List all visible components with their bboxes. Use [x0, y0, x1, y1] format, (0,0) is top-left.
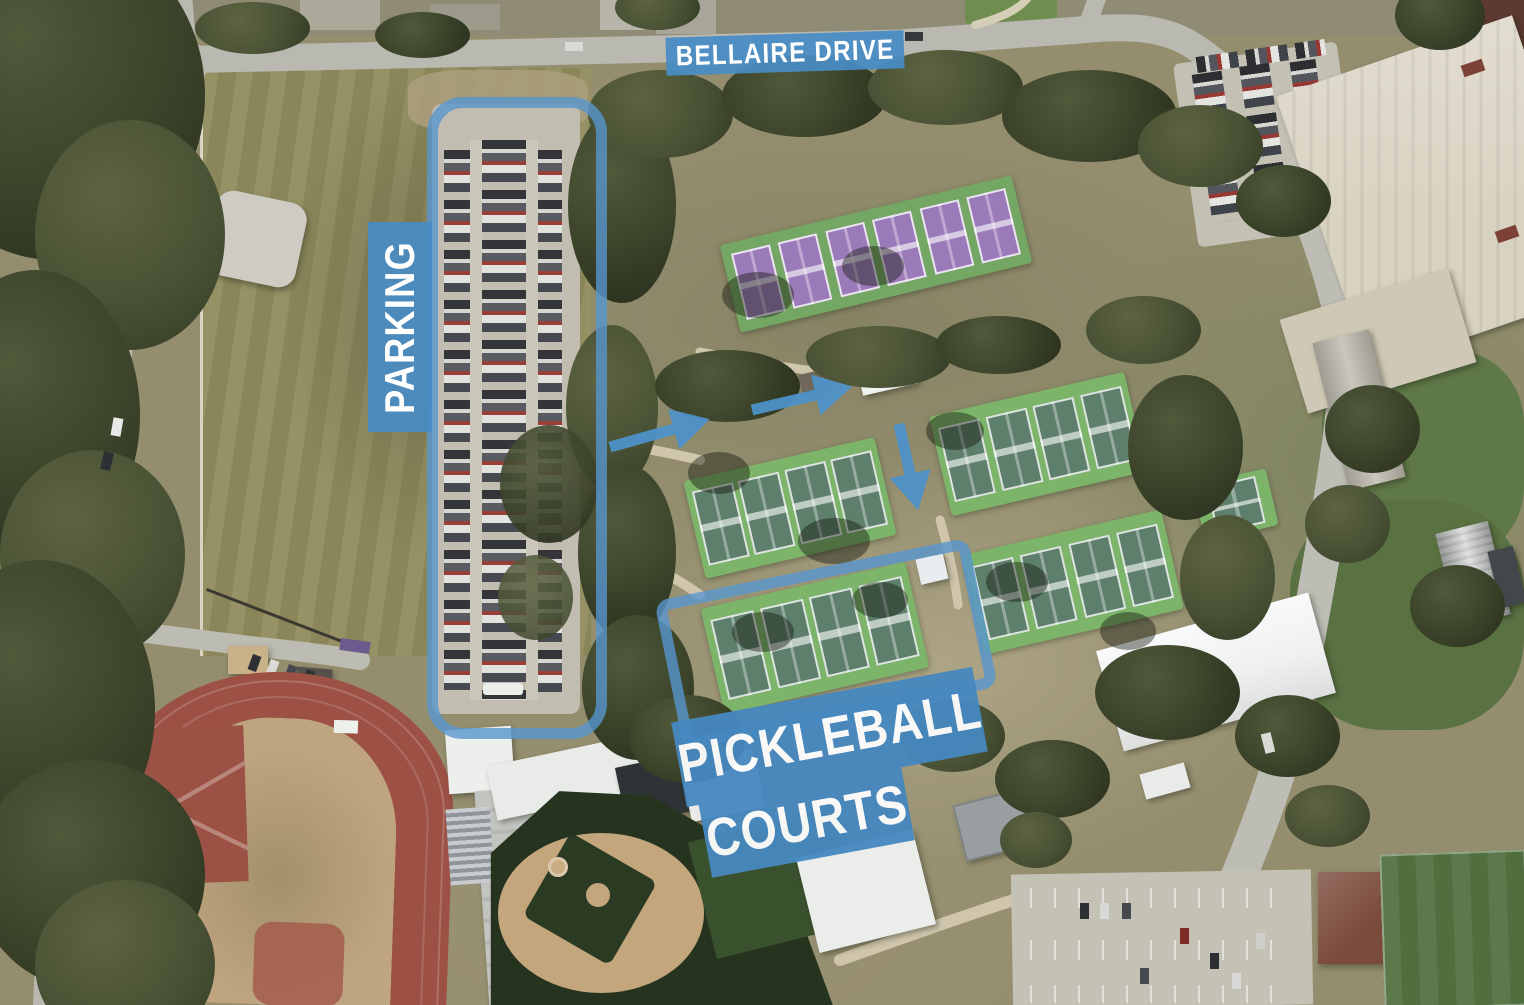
- parking-label: PARKING: [368, 222, 432, 432]
- aerial-map: BELLAIRE DRIVE PARKING PICKLEBALL COURTS: [0, 0, 1524, 1005]
- arrow-right-2: [752, 394, 820, 410]
- arrow-down: [899, 424, 911, 478]
- arrow-right-1: [610, 428, 678, 447]
- street-label-text: BELLAIRE DRIVE: [675, 34, 895, 73]
- parking-label-text: PARKING: [376, 241, 424, 414]
- street-label-bellaire-drive: BELLAIRE DRIVE: [665, 30, 904, 75]
